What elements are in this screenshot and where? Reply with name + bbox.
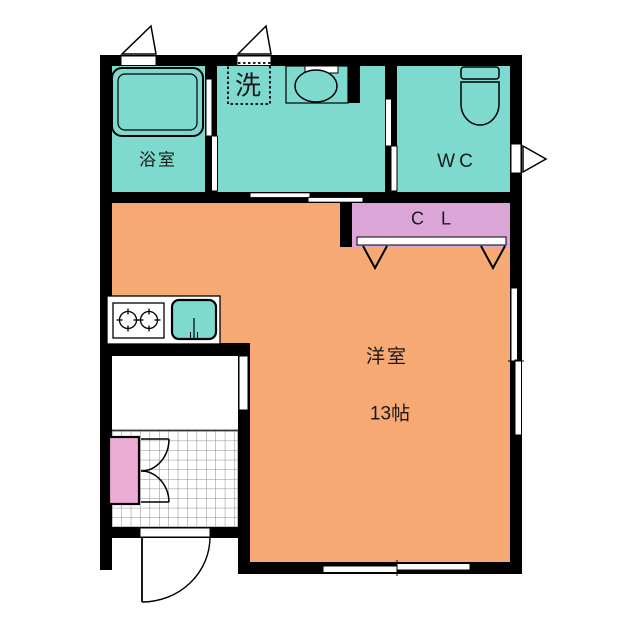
bathroom-label: 浴室 (139, 146, 177, 171)
door-wc-panel-a (386, 99, 392, 146)
room-name-label: 洋室 (366, 342, 408, 369)
wall-kitchen-bottom (100, 343, 250, 356)
closet-label: C L (411, 209, 457, 230)
floor-plan: 浴室 洗 WC C L 洋室 13帖 (0, 0, 640, 640)
awning-flag-wc (523, 146, 546, 172)
window-wc-right (511, 144, 521, 173)
awning-flag-laundry (238, 26, 271, 54)
toilet-label: WC (437, 151, 477, 173)
window-top-bathroom (121, 56, 156, 66)
room-size-label: 13帖 (370, 399, 410, 426)
window-main-right-panel-a (511, 288, 518, 362)
closet-folding-door (357, 237, 506, 245)
floor-plan-drawing (0, 0, 640, 640)
door-laundry-sliding-a (250, 193, 310, 198)
hallway-floor (112, 356, 238, 430)
door-bathroom-panel-b (212, 136, 218, 191)
wall-basin-stub (348, 66, 360, 103)
entrance-door-opening (140, 528, 210, 537)
toilet-tank (461, 67, 499, 79)
awning-flag-bathroom (122, 26, 156, 54)
laundry-label: 洗 (235, 66, 261, 103)
entrance-door-arc (142, 537, 210, 602)
washbasin-bowl (295, 70, 337, 102)
bathtub (112, 68, 203, 136)
door-laundry-sliding-b (308, 197, 363, 202)
door-bathroom-panel-a (206, 79, 212, 136)
window-main-bottom-panel-b (397, 564, 470, 571)
door-wc-panel-b (391, 146, 397, 191)
window-main-bottom-panel-a (323, 566, 398, 573)
window-main-right-panel-b (515, 360, 522, 435)
wall-top (100, 55, 522, 66)
toilet-bowl (461, 82, 499, 125)
window-top-laundry (237, 56, 271, 66)
door-hallway (239, 356, 248, 410)
shoe-cabinet (109, 437, 139, 504)
